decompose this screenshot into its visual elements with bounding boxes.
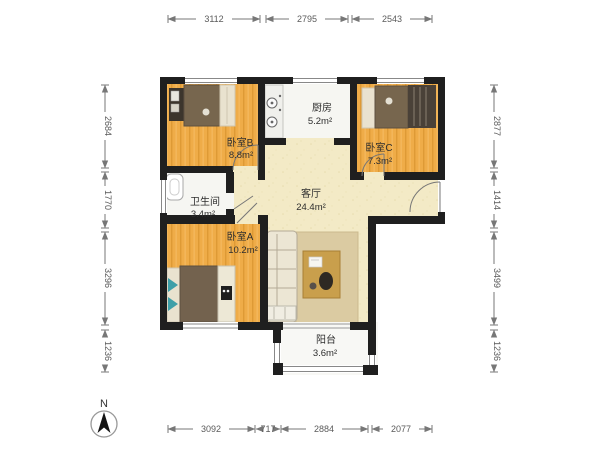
room-area-bathroom: 3.4m² (191, 209, 215, 220)
room-label-balcony: 阳台 (316, 333, 336, 346)
balcony-window-bottom (283, 365, 363, 373)
dim-left-1: 2684 (103, 116, 113, 136)
dim-left-3: 3296 (103, 268, 113, 288)
room-label-living: 客厅 (301, 187, 321, 200)
room-label-bedroomB: 卧室B (227, 136, 254, 149)
room-area-bedroomA: 10.2m² (228, 245, 258, 256)
living-room-coffee-table (303, 251, 340, 298)
room-area-balcony: 3.6m² (313, 348, 337, 359)
dim-bottom-3: 2884 (314, 424, 334, 434)
floorplan-svg: 卧室B 8.8m² 厨房 5.2m² 卧室C 7.3m² 卫生间 3.4m² 客… (0, 0, 600, 450)
entry-opening (438, 180, 445, 212)
north-label: N (100, 398, 108, 410)
room-area-bedroomC: 7.3m² (368, 156, 392, 167)
room-area-bedroomB: 8.8m² (229, 150, 253, 161)
kitchen-window (293, 77, 337, 84)
dim-left-4: 1236 (103, 341, 113, 361)
bedroomC-window (377, 77, 424, 84)
balcony-sliding-door (283, 322, 350, 330)
room-label-kitchen: 厨房 (312, 101, 332, 114)
north-compass: N (91, 398, 117, 437)
outside-mask (376, 224, 445, 322)
balcony-window-left (273, 343, 281, 363)
bedroomA-bed (167, 266, 235, 322)
north-arrow-icon (98, 412, 111, 433)
room-area-kitchen: 5.2m² (308, 116, 332, 127)
bathroom-washbasin (166, 174, 183, 200)
room-label-bathroom: 卫生间 (190, 195, 220, 208)
balcony-window-right (368, 355, 376, 365)
dim-bottom-2: 717 (260, 424, 275, 434)
bedroomB-bed (169, 85, 235, 126)
room-area-living: 24.4m² (296, 202, 326, 213)
bedroomB-window (185, 77, 237, 84)
bathroom-window (160, 180, 167, 213)
bedroomC-bed (362, 85, 436, 128)
bathroom-door-opening (226, 193, 234, 209)
bedroomA-window (183, 322, 238, 330)
dim-right-1: 2877 (492, 116, 502, 136)
dim-right-3: 3499 (492, 268, 502, 288)
room-label-bedroomC: 卧室C (365, 141, 392, 154)
dim-top-1: 3112 (204, 14, 223, 24)
floorplan-image: 卧室B 8.8m² 厨房 5.2m² 卧室C 7.3m² 卫生间 3.4m² 客… (0, 0, 600, 450)
dim-right-4: 1236 (492, 341, 502, 361)
dim-right-2: 1414 (492, 190, 502, 210)
dim-bottom-1: 3092 (201, 424, 221, 434)
dim-top-3: 2543 (382, 14, 402, 24)
dim-bottom-4: 2077 (391, 424, 411, 434)
kitchen-stove (265, 85, 283, 138)
dim-top-2: 2795 (297, 14, 317, 24)
room-label-bedroomA: 卧室A (227, 230, 254, 243)
dim-left-2: 1770 (103, 190, 113, 210)
